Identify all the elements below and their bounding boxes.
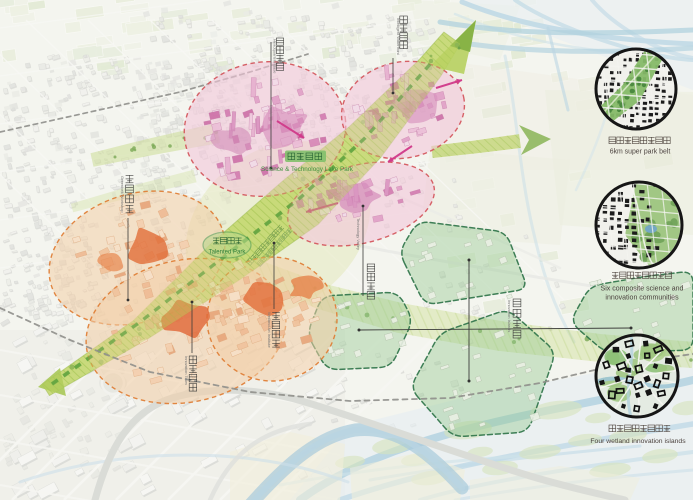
svg-text:Greenbelt Workshop: Greenbelt Workshop: [120, 176, 125, 213]
svg-text:Innovation Town: Innovation Town: [184, 356, 189, 385]
svg-text:Four wetland innovation island: Four wetland innovation islands: [590, 438, 686, 445]
svg-text:Six composite science and: Six composite science and: [601, 286, 684, 293]
svg-text:innovation communities: innovation communities: [605, 295, 679, 302]
svg-text:Innovation Islands: Innovation Islands: [507, 300, 512, 332]
svg-text:Headquarters Base: Headquarters Base: [273, 39, 278, 74]
svg-text:Technology Valley: Technology Valley: [356, 218, 361, 250]
svg-text:Science & Technology Lake Park: Science & Technology Lake Park: [261, 166, 354, 173]
svg-text:Wetland Art Institute: Wetland Art Institute: [267, 312, 272, 348]
svg-text:Intelligent Waterfront: Intelligent Waterfront: [396, 18, 401, 56]
svg-text:Talented Park: Talented Park: [209, 250, 247, 256]
svg-text:6km super park belt: 6km super park belt: [610, 149, 671, 156]
